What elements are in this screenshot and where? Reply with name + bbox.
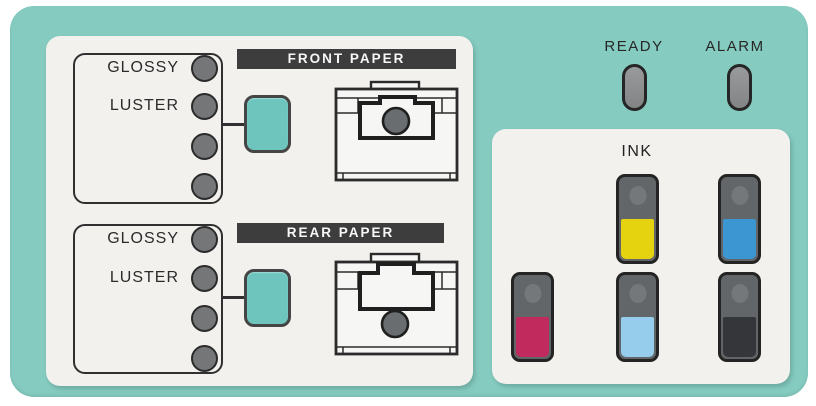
rear-luster-label: LUSTER — [91, 268, 179, 288]
printer-front-feed-icon — [334, 79, 460, 183]
front-media-lamp-4 — [191, 173, 218, 200]
ready-label: READY — [589, 38, 679, 55]
printer-rear-feed-icon — [334, 251, 460, 357]
front-media-lamp-1 — [191, 55, 218, 82]
ink-led-icon — [731, 284, 748, 303]
ink-cartridge-black — [718, 272, 761, 362]
control-panel-board: GLOSSY LUSTER FRONT PAPER GLOSSY LUSTER — [10, 6, 808, 397]
paper-settings-panel: GLOSSY LUSTER FRONT PAPER GLOSSY LUSTER — [46, 36, 473, 386]
alarm-lamp — [727, 64, 752, 111]
rear-paper-select-button[interactable] — [244, 269, 291, 327]
ink-led-icon — [629, 284, 646, 303]
front-media-lamp-3 — [191, 133, 218, 160]
ink-title: INK — [587, 143, 687, 161]
rear-media-lamp-1 — [191, 226, 218, 253]
front-luster-label: LUSTER — [91, 96, 179, 116]
front-glossy-label: GLOSSY — [91, 58, 179, 78]
ink-status-panel: INK — [492, 129, 790, 384]
rear-media-lamp-4 — [191, 345, 218, 372]
ink-cartridge-light-blue — [616, 272, 659, 362]
ink-color-window — [621, 219, 654, 259]
ink-led-icon — [524, 284, 541, 303]
ink-color-window — [723, 317, 756, 357]
ink-color-window — [723, 219, 756, 259]
ink-cartridge-blue — [718, 174, 761, 264]
rear-media-lamp-3 — [191, 305, 218, 332]
front-media-lamp-2 — [191, 93, 218, 120]
ink-color-window — [621, 317, 654, 357]
front-paper-select-button[interactable] — [244, 95, 291, 153]
ink-led-icon — [629, 186, 646, 205]
ink-cartridge-magenta — [511, 272, 554, 362]
front-paper-banner: FRONT PAPER — [237, 49, 456, 69]
ready-lamp — [622, 64, 647, 111]
rear-media-lamp-2 — [191, 265, 218, 292]
rear-paper-banner: REAR PAPER — [237, 223, 444, 243]
rear-connector-line — [223, 296, 245, 299]
alarm-label: ALARM — [690, 38, 780, 55]
ink-color-window — [516, 317, 549, 357]
ink-cartridge-yellow — [616, 174, 659, 264]
rear-glossy-label: GLOSSY — [91, 229, 179, 249]
ink-led-icon — [731, 186, 748, 205]
front-connector-line — [223, 123, 245, 126]
